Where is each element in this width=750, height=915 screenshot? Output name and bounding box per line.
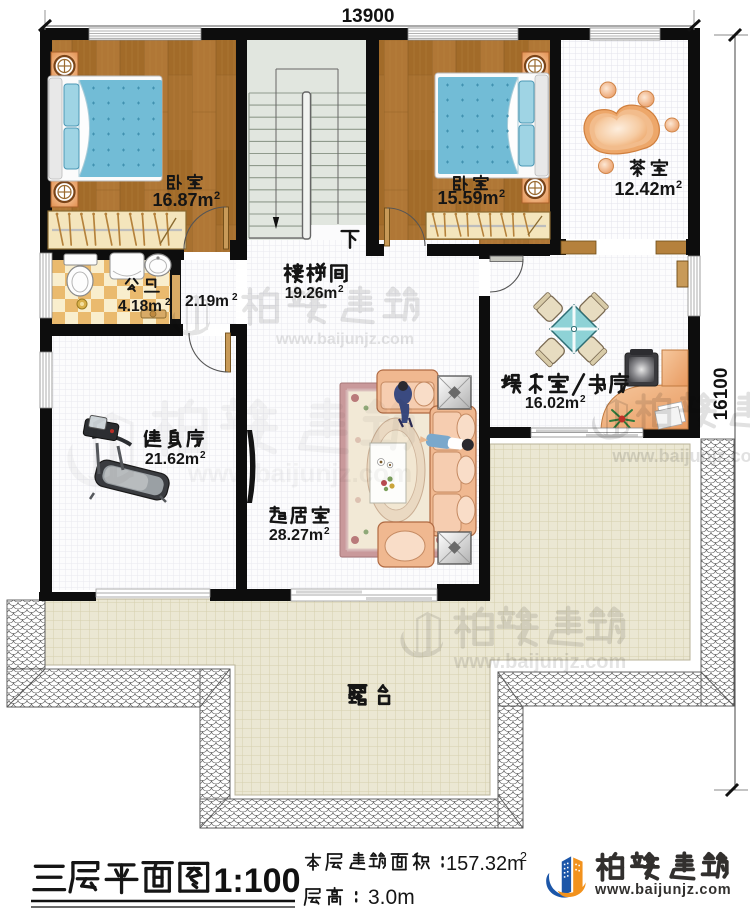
svg-text:www.baijunjz.com: www.baijunjz.com [187, 458, 412, 488]
svg-text:2: 2 [499, 188, 505, 200]
svg-text:www.baijunjz.com: www.baijunjz.com [453, 651, 627, 673]
svg-text:www.baijunjz.com: www.baijunjz.com [275, 331, 414, 348]
svg-text:www.baijunjz.com: www.baijunjz.com [594, 882, 731, 898]
svg-text:2: 2 [200, 450, 206, 461]
svg-text:www.baijunjz.com: www.baijunjz.com [611, 446, 750, 466]
svg-text:2: 2 [165, 297, 171, 308]
svg-text:15.59m: 15.59m [437, 188, 498, 208]
svg-text:16.87m: 16.87m [152, 190, 213, 210]
svg-text:4.18m: 4.18m [118, 298, 162, 315]
svg-text:28.27m: 28.27m [269, 527, 323, 544]
svg-text:157.32m: 157.32m [446, 853, 524, 875]
svg-text:12.42m: 12.42m [614, 179, 675, 199]
svg-text:1:100: 1:100 [214, 862, 301, 900]
svg-text:2: 2 [580, 394, 586, 405]
svg-text:3.0m: 3.0m [368, 886, 415, 909]
svg-text:2: 2 [324, 526, 330, 537]
svg-text:19.26m: 19.26m [285, 285, 338, 302]
svg-text:2: 2 [520, 850, 527, 864]
svg-text:13900: 13900 [342, 6, 395, 27]
svg-text:16.02m: 16.02m [525, 395, 579, 412]
svg-text:21.62m: 21.62m [145, 451, 199, 468]
svg-text:2.19m: 2.19m [185, 293, 229, 310]
svg-text:2: 2 [214, 190, 220, 202]
svg-text:2: 2 [676, 179, 682, 191]
svg-text:2: 2 [338, 284, 344, 295]
svg-text:2: 2 [232, 292, 238, 303]
